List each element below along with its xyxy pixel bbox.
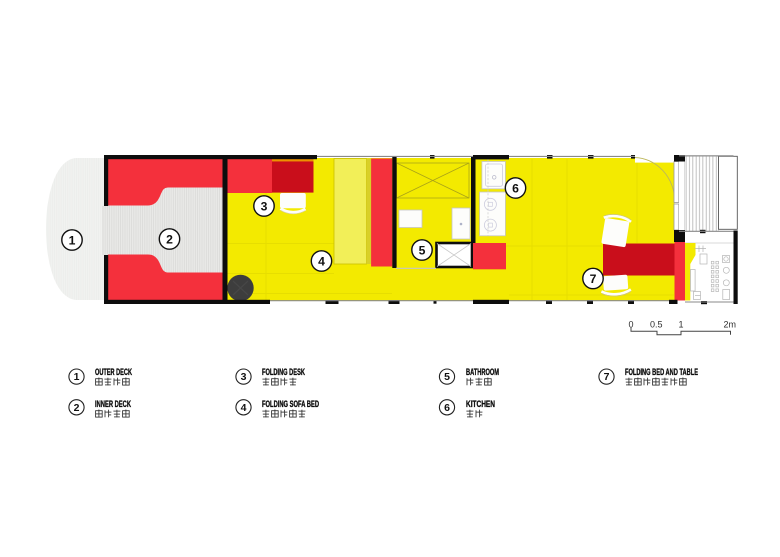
svg-text:2: 2	[166, 232, 173, 246]
svg-text:1: 1	[679, 320, 684, 330]
svg-text:FOLDING BED AND TABLE: FOLDING BED AND TABLE	[625, 367, 698, 377]
svg-text:INNER DECK: INNER DECK	[95, 399, 131, 409]
svg-text:3: 3	[261, 199, 268, 213]
svg-text:FOLDING SOFA BED: FOLDING SOFA BED	[262, 399, 319, 409]
svg-text:6: 6	[444, 402, 450, 414]
svg-text:KITCHEN: KITCHEN	[466, 399, 495, 409]
svg-text:0.5: 0.5	[650, 320, 663, 330]
svg-text:7: 7	[590, 272, 597, 286]
svg-text:BATHROOM: BATHROOM	[466, 367, 499, 377]
svg-text:6: 6	[512, 181, 519, 195]
svg-text:1: 1	[74, 371, 80, 383]
svg-text:5: 5	[419, 243, 426, 257]
svg-text:OUTER DECK: OUTER DECK	[95, 367, 132, 377]
svg-text:4: 4	[318, 254, 325, 268]
svg-text:0: 0	[629, 320, 634, 330]
svg-text:1: 1	[69, 233, 76, 247]
svg-text:7: 7	[604, 371, 610, 383]
svg-text:2m: 2m	[724, 320, 737, 330]
svg-text:FOLDING DESK: FOLDING DESK	[262, 367, 305, 377]
svg-text:4: 4	[241, 402, 247, 414]
svg-text:5: 5	[444, 371, 450, 383]
svg-text:2: 2	[74, 402, 80, 414]
svg-text:3: 3	[241, 371, 247, 383]
